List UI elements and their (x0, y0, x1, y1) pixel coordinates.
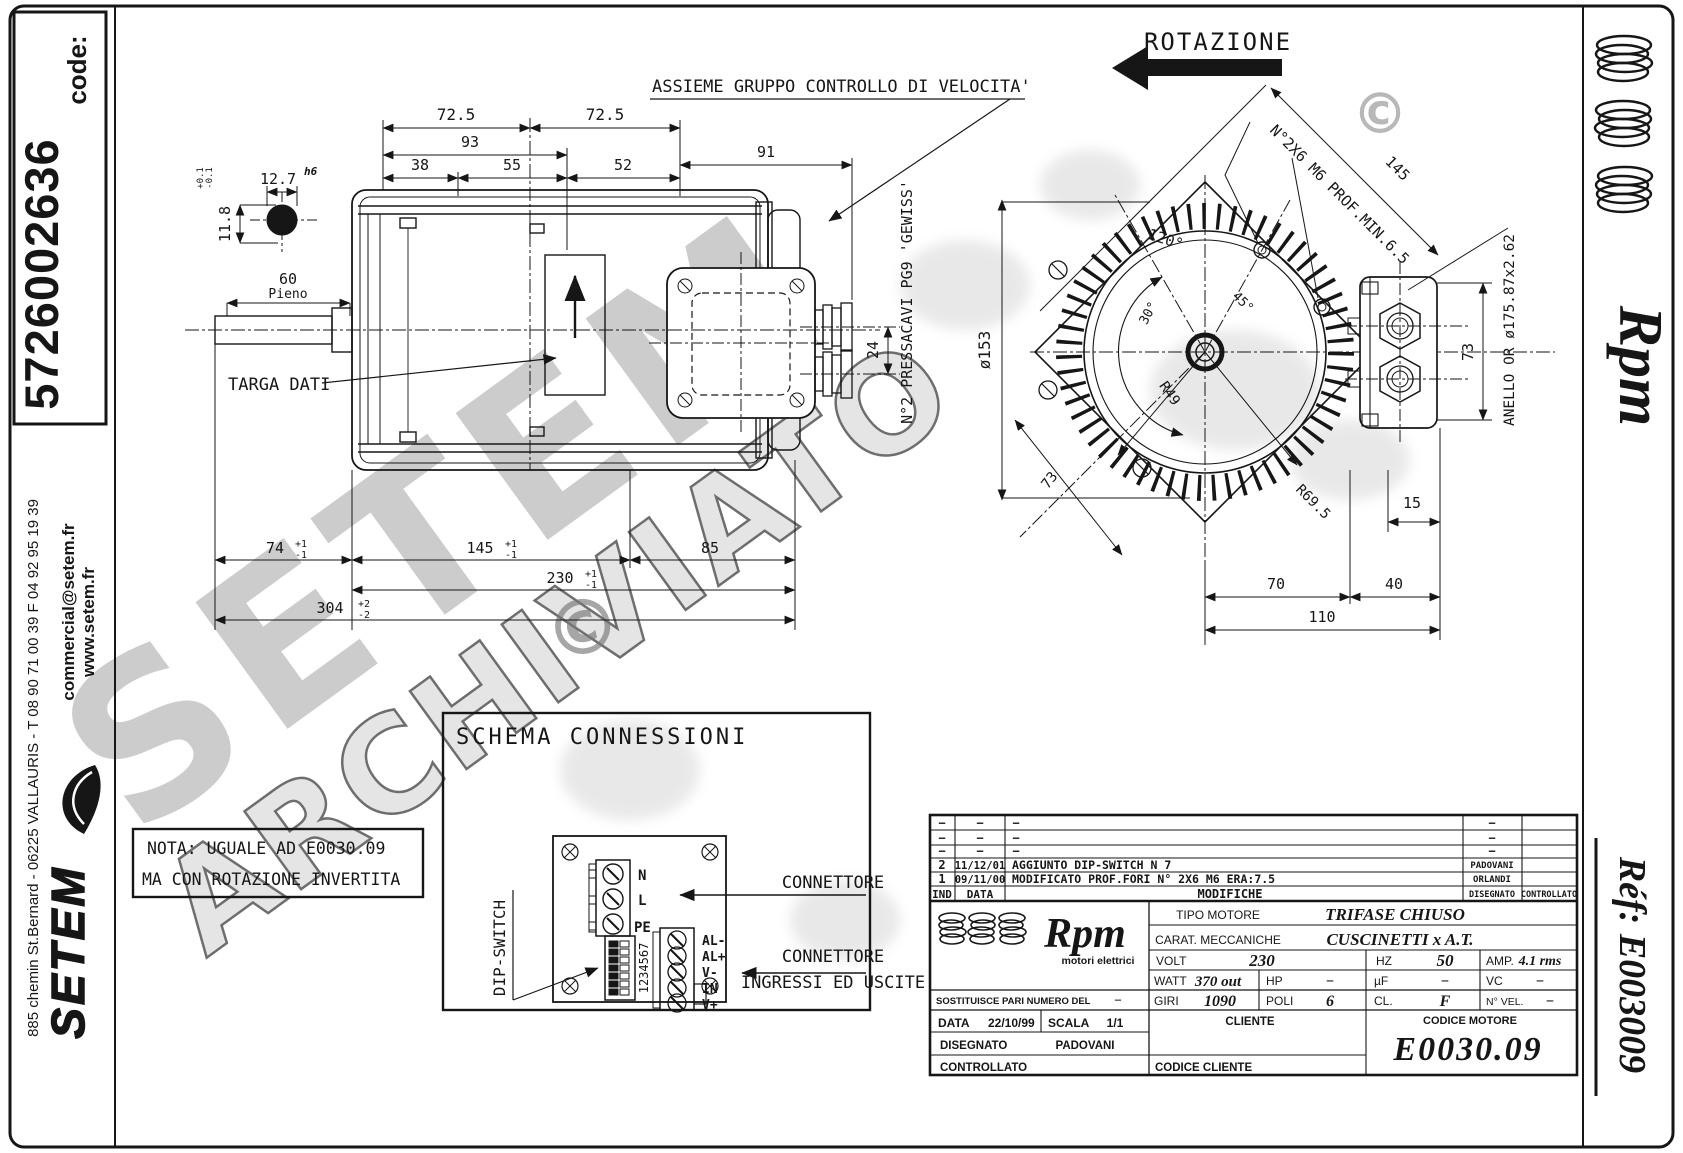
rev-row-mod: AGGIUNTO DIP-SWITCH N 7 (1012, 858, 1171, 872)
nvel-value: − (1546, 994, 1554, 1009)
dip-numbers: 1234567 (637, 943, 651, 994)
dim-52: 52 (614, 156, 632, 174)
cl-value: F (1439, 993, 1451, 1010)
poli-label: POLI (1266, 994, 1293, 1008)
rpm-script-side: Rpm (1606, 305, 1674, 427)
sost-value: − (1114, 993, 1121, 1007)
giri-label: GIRI (1154, 994, 1179, 1008)
io-v-plus: V+ (702, 998, 718, 1013)
dim-74-sup: +1 (295, 539, 307, 550)
address-text: 885 chemin St.Bernard - 06225 VALLAURIS … (25, 499, 42, 1037)
rpm-coil-logo (1595, 36, 1652, 212)
codice-motore-label: CODICE MOTORE (1423, 1015, 1517, 1027)
uf-value: − (1441, 974, 1449, 989)
dim-145: 145 (466, 539, 493, 557)
dim-45deg: 45° (1229, 289, 1256, 316)
rev-header-controllato: CONTROLLATO (1521, 890, 1577, 900)
rev-header-disegnato: DISEGNATO (1469, 890, 1515, 900)
data-label: DATA (938, 1016, 970, 1030)
rev-row-dis: − (1488, 844, 1495, 858)
rev-row-ind: − (938, 844, 945, 858)
hp-value: − (1326, 974, 1334, 989)
dim-h6: h6 (304, 165, 318, 178)
nvel-label: N° VEL. (1486, 996, 1523, 1008)
dim-60: 60 (279, 270, 297, 288)
watt-value: 370 out (1194, 974, 1242, 990)
rev-header-modifiche: MODIFICHE (1197, 887, 1262, 901)
rev-header-data: DATA (967, 888, 994, 901)
rev-row-dis: PADOVANI (1470, 861, 1513, 871)
dim-73-right: 73 (1459, 343, 1477, 361)
io-al-plus: AL+ (702, 950, 726, 965)
code-value: 5726002636 (15, 138, 68, 409)
cl-label: CL. (1374, 994, 1393, 1008)
giri-value: 1090 (1204, 993, 1236, 1010)
controllato-label: CONTROLLATO (940, 1062, 1027, 1074)
dim-dia153: ø153 (975, 331, 994, 370)
data-value: 22/10/99 (988, 1016, 1035, 1030)
vc-value: − (1536, 974, 1544, 989)
dim-110: 110 (1308, 608, 1335, 626)
rev-row-dis: − (1488, 831, 1495, 845)
ref-label: Réf: E003009 (1611, 856, 1653, 1073)
rev-row-mod: − (1012, 816, 1019, 830)
rev-row-data: − (976, 844, 983, 858)
code-label: code: (62, 35, 92, 104)
rev-row-mod: − (1012, 844, 1019, 858)
dim-15: 15 (1403, 494, 1421, 512)
anello-label: ANELLO OR ø175.87x2.62 (1502, 234, 1518, 426)
drawing-sheet: SETEM ARCHIVIATO © © code: 5726002636 ww… (0, 0, 1683, 1153)
rev-row-ind: 1 (938, 872, 945, 886)
rev-row-data: − (976, 831, 983, 845)
rev-row-mod: − (1012, 831, 1019, 845)
scala-label: SCALA (1048, 1016, 1090, 1030)
cliente-label: CLIENTE (1225, 1016, 1275, 1028)
dim-725a: 72.5 (437, 105, 476, 124)
dim-r695: R69.5 (1292, 482, 1333, 523)
watt-label: WATT (1154, 974, 1187, 988)
dim-85: 85 (701, 539, 719, 557)
dim-145-sub: -1 (505, 550, 517, 561)
rev-row-ind: − (938, 831, 945, 845)
website-text: www.setem.fr (79, 567, 98, 678)
dim-91: 91 (757, 143, 775, 161)
dim-230-sup: +1 (585, 569, 597, 580)
carat-label: CARAT. MECCANICHE (1155, 933, 1281, 947)
rev-row-dis: − (1488, 816, 1495, 830)
sost-label: SOSTITUISCE PARI NUMERO DEL (936, 996, 1091, 1007)
rev-row-ind: − (938, 816, 945, 830)
front-terminal-box (1345, 262, 1470, 445)
dim-118: 11.8 (216, 206, 234, 242)
io-connettore-line1: CONNETTORE (782, 947, 884, 967)
terminal-pe: PE (634, 920, 651, 936)
dim-24: 24 (864, 341, 882, 359)
rev-row-data: − (976, 816, 983, 830)
email-text: commercial@setem.fr (59, 523, 78, 701)
volt-label: VOLT (1156, 954, 1187, 968)
dim-93: 93 (461, 133, 479, 151)
hz-label: HZ (1376, 954, 1392, 968)
dip-switch-label: DIP-SWITCH (490, 900, 509, 996)
terminal-n: N (638, 868, 646, 884)
setem-logo: SETEM (42, 765, 101, 1039)
assembly-leader (829, 99, 1010, 221)
rev-header-ind: IND (932, 888, 952, 901)
dim-74: 74 (266, 539, 284, 557)
connettore-label: CONNETTORE (782, 873, 884, 893)
rpm-logo-small (939, 913, 1026, 944)
codice-cliente-label: CODICE CLIENTE (1155, 1062, 1252, 1074)
label-pieno: Pieno (268, 287, 307, 302)
key-detail (240, 186, 318, 252)
dim-55: 55 (503, 156, 521, 174)
rotation-label: ROTAZIONE (1144, 28, 1292, 56)
rpm-script-block: Rpm (1043, 911, 1126, 957)
holes-label: N°2X6 M6 PROF.MIN.6.5 (1266, 121, 1413, 268)
rev-row-data: 11/12/01 (955, 860, 1006, 872)
dim-145-sup: +1 (505, 539, 517, 550)
rev-row-ind: 2 (938, 858, 945, 872)
nota-line1: NOTA: UGUALE AD E0030.09 (147, 839, 385, 858)
io-connettore-line2: INGRESSI ED USCITE (741, 973, 925, 993)
terminal-l: L (638, 893, 646, 909)
volt-value: 230 (1248, 951, 1275, 970)
rev-row-dis: ORLANDI (1473, 875, 1511, 885)
dim-40: 40 (1385, 575, 1403, 593)
dim-304: 304 (316, 599, 343, 617)
dim-120deg: 120° (1146, 225, 1186, 253)
dim-70: 70 (1267, 575, 1285, 593)
poli-value: 6 (1326, 993, 1334, 1010)
dim-74-sub: -1 (295, 550, 307, 561)
rev-row-data: 09/11/00 (955, 874, 1006, 886)
schema-title: SCHEMA CONNESSIONI (456, 725, 748, 750)
setem-logo-text: SETEM (42, 865, 94, 1038)
targa-label: TARGA DATI (228, 375, 330, 395)
dim-145-diag: 145 (1382, 153, 1414, 185)
hz-value: 50 (1437, 951, 1455, 970)
disegnato-label: DISEGNATO (940, 1040, 1007, 1052)
io-in: IN (702, 982, 718, 997)
uf-label: µF (1374, 974, 1388, 988)
io-v-minus: V- (702, 966, 718, 981)
amp-label: AMP. (1486, 954, 1514, 968)
disegnato-value: PADOVANI (1056, 1040, 1115, 1052)
dim-304-sub: -2 (358, 610, 370, 621)
nota-line2: MA CON ROTAZIONE INVERTITA (142, 870, 400, 889)
hp-label: HP (1266, 974, 1283, 988)
tipo-label: TIPO MOTORE (1176, 908, 1260, 922)
rev-row-mod: MODIFICATO PROF.FORI N° 2X6 M6 ERA:7.5 (1012, 872, 1275, 886)
amp-value: 4.1 rms (1518, 954, 1562, 969)
assembly-label: ASSIEME GRUPPO CONTROLLO DI VELOCITA' (652, 77, 1031, 97)
pressacavi-label: N°2 PRESSACAVI PG9 'GEWISS' (898, 180, 916, 424)
front-view-linework (1020, 85, 1555, 645)
rpm-tagline: motori elettrici (1062, 955, 1135, 967)
dim-tol-minus: -0.1 (205, 167, 215, 189)
control-box-front (649, 252, 833, 434)
dim-230-sub: -1 (585, 580, 597, 591)
dim-30deg: 30° (1137, 299, 1161, 327)
dim-725b: 72.5 (586, 105, 625, 124)
io-al-minus: AL- (702, 934, 725, 949)
dim-38: 38 (411, 156, 429, 174)
targa-leader (322, 358, 556, 383)
cad-drawing: code: 5726002636 www.setem.fr commercial… (0, 0, 1683, 1153)
dim-230: 230 (546, 569, 573, 587)
codice-motore-value: E0030.09 (1392, 1031, 1542, 1068)
dim-304-sup: +2 (358, 599, 370, 610)
carat-value: CUSCINETTI x A.T. (1326, 930, 1473, 949)
dim-127: 12.7 (260, 170, 296, 188)
scala-value: 1/1 (1107, 1016, 1124, 1030)
tipo-value: TRIFASE CHIUSO (1325, 905, 1465, 924)
vc-label: VC (1486, 974, 1503, 988)
dim-73-diag: 73 (1038, 469, 1061, 492)
